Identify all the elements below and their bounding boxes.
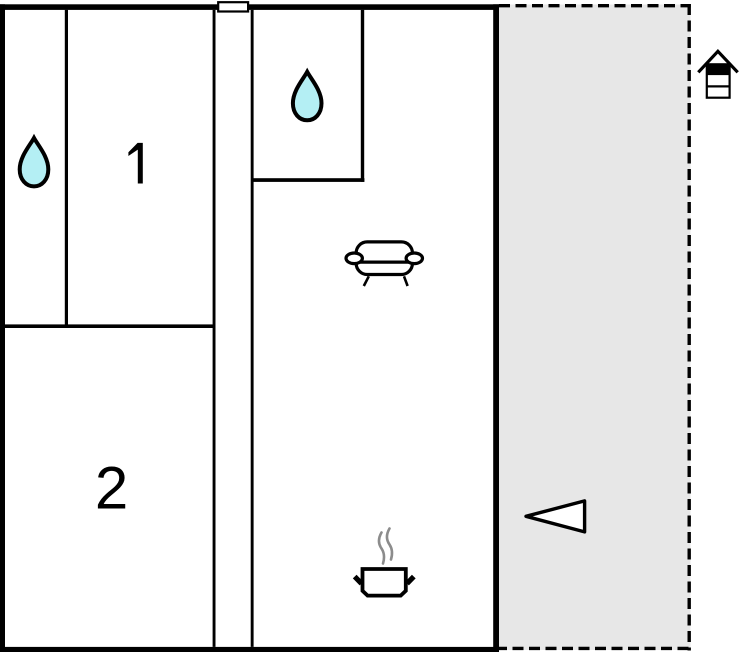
svg-text:2: 2 bbox=[95, 455, 128, 522]
